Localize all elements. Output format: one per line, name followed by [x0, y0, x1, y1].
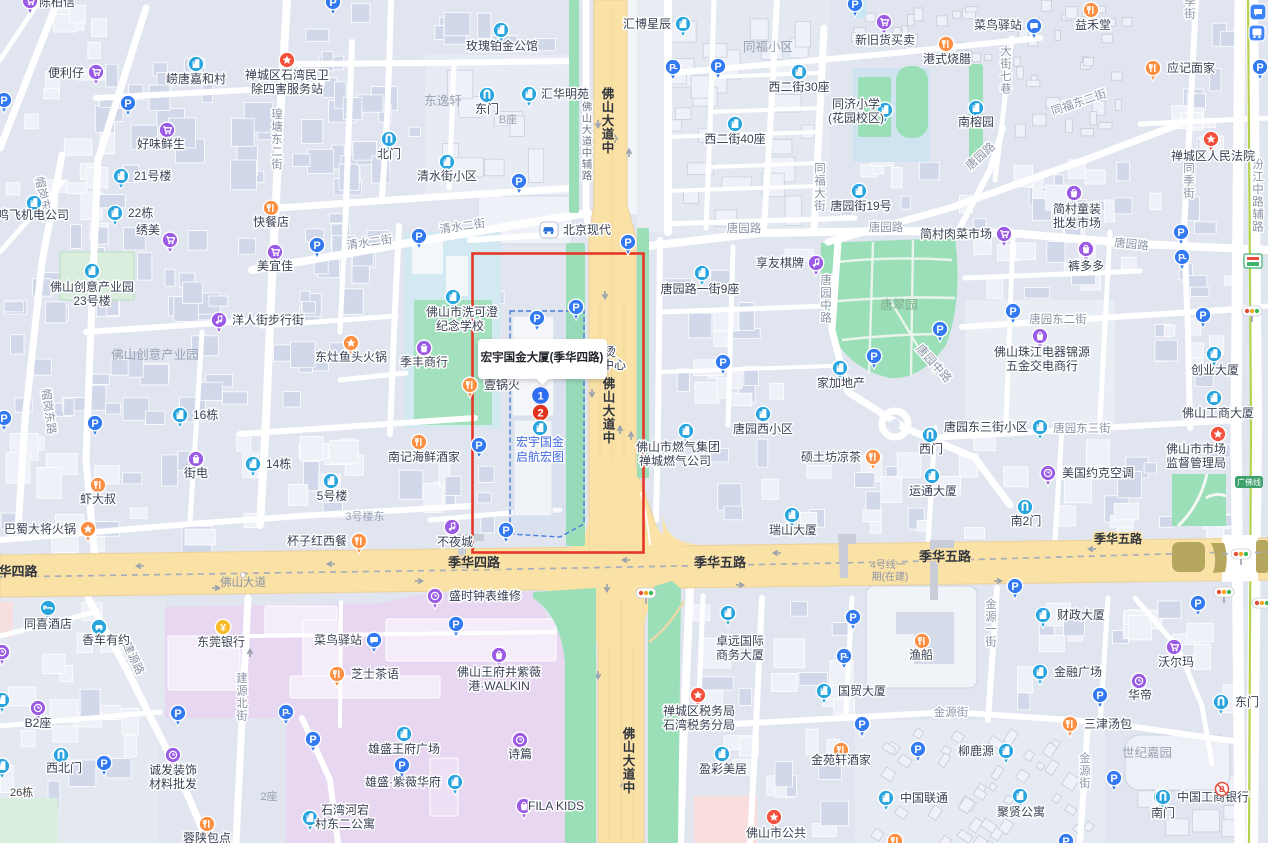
- svg-text:P: P: [533, 313, 540, 325]
- svg-text:享友棋牌: 享友棋牌: [756, 255, 804, 270]
- svg-text:(花园校区): (花园校区): [828, 110, 884, 125]
- svg-text:崂唐嘉和村: 崂唐嘉和村: [166, 71, 226, 86]
- svg-text:益禾堂: 益禾堂: [1075, 18, 1111, 32]
- svg-text:巴蜀大将火锅: 巴蜀大将火锅: [4, 521, 76, 536]
- svg-text:P: P: [719, 357, 726, 369]
- svg-text:柳鹿源: 柳鹿源: [958, 743, 994, 758]
- svg-text:硕土坊凉茶: 硕土坊凉茶: [801, 449, 861, 464]
- svg-text:P: P: [452, 619, 459, 631]
- svg-text:不夜城: 不夜城: [437, 534, 473, 549]
- svg-text:P: P: [415, 231, 422, 243]
- svg-text:P: P: [572, 302, 579, 314]
- svg-text:港·WALKIN: 港·WALKIN: [468, 679, 530, 693]
- svg-text:美国约克空调: 美国约克空调: [1062, 465, 1134, 480]
- svg-text:诚发装饰: 诚发装饰: [149, 762, 197, 777]
- svg-text:盛时钟表维修: 盛时钟表维修: [449, 588, 521, 603]
- svg-text:佛山工商大厦: 佛山工商大厦: [1182, 405, 1254, 420]
- svg-text:2: 2: [537, 408, 543, 420]
- svg-text:P: P: [1110, 773, 1117, 785]
- svg-text:菜鸟驿站: 菜鸟驿站: [974, 17, 1022, 32]
- svg-text:季华五路: 季华五路: [918, 549, 972, 564]
- svg-text:¥: ¥: [220, 623, 226, 634]
- svg-text:唐园东二街: 唐园东二街: [1029, 312, 1087, 326]
- svg-text:同季街: 同季街: [1183, 163, 1195, 200]
- svg-text:P: P: [174, 708, 181, 720]
- svg-text:虾大叔: 虾大叔: [80, 492, 116, 506]
- svg-text:材料批发: 材料批发: [149, 776, 197, 791]
- svg-text:唐园路: 唐园路: [869, 220, 904, 234]
- svg-text:26栋: 26栋: [10, 785, 33, 799]
- svg-text:应记面家: 应记面家: [1167, 60, 1215, 75]
- svg-text:佛山珠江电器锦源: 佛山珠江电器锦源: [994, 345, 1090, 359]
- svg-text:季丰商行: 季丰商行: [400, 354, 448, 369]
- svg-text:家加地产: 家加地产: [817, 375, 865, 390]
- svg-text:同济小学: 同济小学: [832, 96, 880, 111]
- svg-text:香车有约: 香车有约: [82, 632, 130, 647]
- svg-text:P: P: [91, 418, 98, 430]
- svg-text:禅城燃气公司: 禅城燃气公司: [639, 453, 711, 468]
- svg-text:好味鲜生: 好味鲜生: [137, 137, 185, 151]
- svg-text:P: P: [313, 240, 320, 252]
- svg-text:P: P: [1096, 690, 1103, 702]
- svg-text:季华五路: 季华五路: [1093, 531, 1143, 546]
- svg-text:季华四路: 季华四路: [447, 555, 501, 570]
- svg-text:港式烧腊: 港式烧腊: [923, 52, 971, 66]
- svg-text:唐园路: 唐园路: [727, 221, 762, 235]
- svg-text:22栋: 22栋: [128, 205, 153, 220]
- svg-text:瑞山大厦: 瑞山大厦: [769, 523, 817, 537]
- svg-text:金融广场: 金融广场: [1054, 664, 1102, 679]
- svg-text:大街七巷: 大街七巷: [1000, 44, 1012, 96]
- svg-text:P: P: [0, 95, 7, 107]
- svg-text:P: P: [870, 351, 877, 363]
- svg-text:纪念学校: 纪念学校: [436, 318, 484, 333]
- svg-text:街电: 街电: [184, 466, 208, 480]
- svg-text:P: P: [100, 758, 107, 770]
- svg-text:P: P: [1009, 306, 1016, 318]
- svg-text:B2座: B2座: [25, 715, 52, 730]
- svg-text:诗篇: 诗篇: [508, 746, 532, 761]
- svg-text:季街: 季街: [1184, 0, 1196, 21]
- svg-text:石湾河宕: 石湾河宕: [321, 802, 369, 817]
- svg-text:西二街40座: 西二街40座: [704, 131, 765, 146]
- svg-text:P: P: [936, 324, 943, 336]
- svg-text:季华五路: 季华五路: [693, 555, 747, 570]
- svg-text:唐园西小区: 唐园西小区: [733, 421, 793, 436]
- svg-text:南榕园: 南榕园: [958, 114, 994, 129]
- svg-text:商务大厦: 商务大厦: [716, 647, 764, 662]
- svg-text:北京现代: 北京现代: [563, 223, 611, 237]
- svg-text:创业大厦: 创业大厦: [1191, 363, 1239, 377]
- svg-text:佛山王府井紫薇: 佛山王府井紫薇: [457, 664, 541, 679]
- svg-text:五金交电商行: 五金交电商行: [1006, 358, 1078, 373]
- svg-text:汇华明苑: 汇华明苑: [541, 87, 589, 101]
- svg-text:批发市场: 批发市场: [1053, 215, 1101, 230]
- svg-text:P: P: [329, 0, 336, 9]
- svg-text:壹锅火: 壹锅火: [484, 377, 520, 392]
- svg-text:运通大厦: 运通大厦: [909, 484, 957, 498]
- svg-text:P: P: [624, 237, 631, 249]
- svg-text:宏宇国金大厦(季华四路): 宏宇国金大厦(季华四路): [481, 350, 604, 364]
- svg-text:雄盛王府广场: 雄盛王府广场: [368, 741, 440, 756]
- svg-text:绣美: 绣美: [136, 223, 160, 237]
- svg-text:芝士茶语: 芝士茶语: [351, 666, 399, 681]
- svg-text:P: P: [1011, 581, 1018, 593]
- svg-text:同福大街: 同福大街: [814, 163, 826, 213]
- svg-text:P: P: [851, 0, 858, 11]
- svg-text:广佛线: 广佛线: [1237, 477, 1261, 487]
- svg-text:禅城区石湾民卫: 禅城区石湾民卫: [245, 67, 329, 82]
- svg-text:23号楼: 23号楼: [73, 293, 110, 308]
- svg-text:财政大厦: 财政大厦: [1057, 608, 1105, 622]
- svg-text:4号线一: 4号线一: [870, 558, 906, 571]
- svg-text:东门: 东门: [1235, 694, 1259, 709]
- svg-text:清水街小区: 清水街小区: [417, 169, 477, 183]
- svg-text:西门: 西门: [919, 441, 943, 456]
- svg-text:P: P: [515, 176, 522, 188]
- svg-text:西北门: 西北门: [46, 760, 82, 775]
- svg-text:佛山大道: 佛山大道: [220, 575, 266, 589]
- svg-text:盈彩美居: 盈彩美居: [699, 762, 747, 776]
- svg-text:唐园路一街9座: 唐园路一街9座: [661, 281, 740, 296]
- svg-text:唐园东三街: 唐园东三街: [1053, 421, 1111, 435]
- svg-text:21号楼: 21号楼: [134, 168, 171, 183]
- svg-text:佛山市市场: 佛山市市场: [1166, 441, 1226, 456]
- svg-text:P: P: [1177, 227, 1184, 239]
- svg-text:西二街30座: 西二街30座: [768, 79, 829, 94]
- svg-text:汾江中路辅路: 汾江中路辅路: [1252, 158, 1264, 234]
- svg-text:启航宏图: 启航宏图: [516, 449, 564, 464]
- svg-text:P: P: [502, 525, 509, 537]
- svg-text:佛山创意产业园: 佛山创意产业园: [111, 347, 199, 362]
- svg-text:南门: 南门: [1151, 805, 1175, 820]
- svg-text:宏宇国金: 宏宇国金: [516, 434, 564, 449]
- svg-text:金苑轩酒家: 金苑轩酒家: [811, 752, 871, 767]
- svg-text:聚贤公寓: 聚贤公寓: [997, 804, 1045, 819]
- svg-text:P: P: [858, 719, 865, 731]
- svg-text:石湾税务分局: 石湾税务分局: [663, 717, 735, 732]
- svg-text:杯子红西餐: 杯子红西餐: [287, 533, 347, 548]
- svg-text:蓉陕包点: 蓉陕包点: [183, 830, 231, 843]
- svg-text:除四害服务站: 除四害服务站: [251, 81, 323, 96]
- svg-text:同喜酒店: 同喜酒店: [24, 617, 72, 631]
- svg-text:FILA KIDS: FILA KIDS: [528, 799, 584, 813]
- svg-text:裤多多: 裤多多: [1068, 259, 1104, 273]
- svg-text:14栋: 14栋: [266, 456, 291, 471]
- svg-text:便利仔: 便利仔: [48, 66, 84, 80]
- svg-text:监督管理局: 监督管理局: [1166, 455, 1226, 470]
- svg-text:P: P: [1062, 836, 1069, 843]
- svg-text:村东二公寓: 村东二公寓: [315, 816, 375, 831]
- svg-text:北门: 北门: [377, 146, 401, 161]
- svg-text:1: 1: [537, 391, 543, 403]
- svg-text:P: P: [849, 612, 856, 624]
- svg-text:P: P: [714, 61, 721, 73]
- svg-text:金源街: 金源街: [1079, 751, 1091, 790]
- svg-text:简村肉菜市场: 简村肉菜市场: [920, 226, 992, 241]
- svg-text:金源一街: 金源一街: [985, 597, 997, 649]
- svg-text:佛山大道中: 佛山大道中: [602, 376, 616, 445]
- svg-text:瑝塘东二街: 瑝塘东二街: [271, 107, 283, 171]
- svg-text:唐园街19号: 唐园街19号: [830, 198, 891, 213]
- svg-text:三津汤包: 三津汤包: [1084, 717, 1132, 731]
- svg-text:P: P: [1256, 62, 1263, 74]
- svg-text:南记海鲜酒家: 南记海鲜酒家: [388, 449, 460, 464]
- svg-text:P: P: [1199, 310, 1206, 322]
- svg-text:禅城区税务局: 禅城区税务局: [663, 703, 735, 718]
- svg-text:佛山创意产业园: 佛山创意产业园: [50, 279, 134, 294]
- svg-text:佛山市洗可澄: 佛山市洗可澄: [426, 304, 498, 319]
- svg-text:快餐店: 快餐店: [253, 214, 289, 229]
- svg-text:世纪嘉园: 世纪嘉园: [1122, 746, 1172, 760]
- svg-text:东灶鱼头火锅: 东灶鱼头火锅: [315, 349, 387, 364]
- svg-text:B座: B座: [499, 112, 517, 126]
- svg-text:16栋: 16栋: [193, 407, 218, 422]
- svg-text:渔船: 渔船: [909, 648, 933, 662]
- svg-text:玫瑰铂金公馆: 玫瑰铂金公馆: [466, 38, 538, 53]
- svg-text:华四路: 华四路: [0, 564, 38, 579]
- svg-text:佛山大道中: 佛山大道中: [601, 86, 615, 155]
- svg-text:P: P: [309, 734, 316, 746]
- svg-text:洋人街步行街: 洋人街步行街: [232, 312, 304, 327]
- svg-text:金源街: 金源街: [934, 705, 969, 719]
- svg-text:5号楼: 5号楼: [317, 488, 348, 503]
- svg-text:中国工商银行: 中国工商银行: [1177, 789, 1249, 804]
- svg-text:国贸大厦: 国贸大厦: [838, 684, 886, 698]
- svg-text:唐翠园: 唐翠园: [880, 297, 918, 312]
- svg-text:东逸轩: 东逸轩: [424, 94, 462, 108]
- svg-text:华帝: 华帝: [1128, 687, 1152, 702]
- svg-text:中国联通: 中国联通: [900, 790, 948, 805]
- svg-text:陈柏信: 陈柏信: [39, 0, 75, 9]
- svg-text:P: P: [914, 744, 921, 756]
- svg-text:卓远国际: 卓远国际: [716, 634, 764, 648]
- svg-text:期(在建): 期(在建): [872, 570, 909, 583]
- svg-text:P: P: [1194, 598, 1201, 610]
- svg-text:菜鸟驿站: 菜鸟驿站: [314, 632, 362, 647]
- svg-text:佛山市燃气集团: 佛山市燃气集团: [636, 439, 720, 454]
- svg-text:2座: 2座: [260, 789, 277, 803]
- svg-text:美宜佳: 美宜佳: [257, 258, 293, 273]
- svg-text:佛山大道中辅路: 佛山大道中辅路: [582, 100, 593, 182]
- svg-text:建源北街: 建源北街: [236, 671, 248, 723]
- svg-text:唐园东三街小区: 唐园东三街小区: [944, 419, 1028, 434]
- svg-text:汇博星辰: 汇博星辰: [623, 16, 671, 31]
- svg-text:P: P: [124, 98, 131, 110]
- svg-text:唐园中路: 唐园中路: [820, 273, 832, 325]
- svg-text:同福小区: 同福小区: [743, 39, 793, 54]
- svg-text:佛山大道中: 佛山大道中: [622, 726, 636, 795]
- svg-text:禅城区人民法院: 禅城区人民法院: [1171, 149, 1255, 163]
- svg-text:P: P: [475, 440, 482, 452]
- svg-text:南2门: 南2门: [1011, 513, 1042, 528]
- svg-text:佛山市公共: 佛山市公共: [746, 825, 806, 840]
- svg-text:P: P: [398, 760, 405, 772]
- svg-text:3号楼东: 3号楼东: [345, 509, 384, 523]
- svg-text:新旧货买卖: 新旧货买卖: [855, 32, 915, 47]
- svg-text:鸣飞机电公司: 鸣飞机电公司: [0, 207, 69, 222]
- svg-text:P: P: [0, 413, 7, 425]
- svg-text:简村童装: 简村童装: [1053, 201, 1101, 216]
- svg-text:东莞银行: 东莞银行: [197, 635, 245, 649]
- svg-text:东门: 东门: [475, 101, 499, 116]
- svg-text:沃尔玛: 沃尔玛: [1158, 654, 1194, 669]
